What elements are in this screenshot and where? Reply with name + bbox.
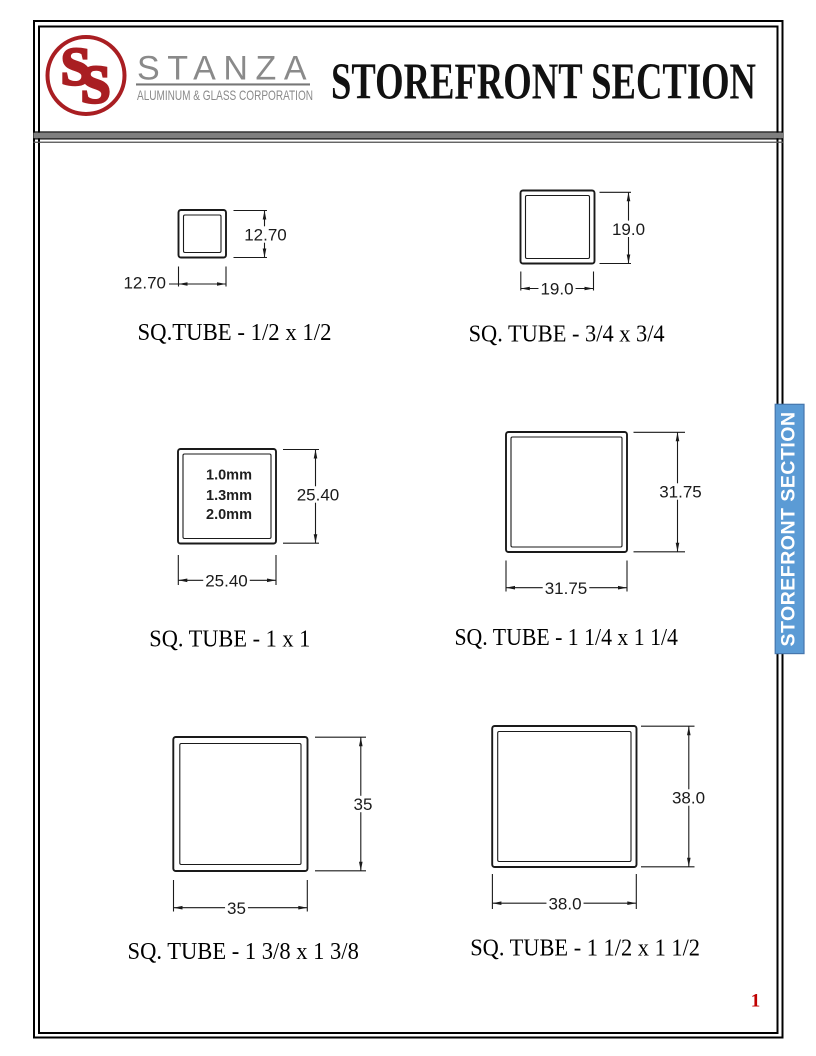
svg-text:25.40: 25.40 <box>297 486 340 505</box>
svg-text:SQ. TUBE - 3/4 x 3/4: SQ. TUBE - 3/4 x 3/4 <box>469 321 665 347</box>
svg-text:35: 35 <box>227 899 246 918</box>
svg-text:STANZA: STANZA <box>137 49 314 87</box>
svg-text:STOREFRONT SECTION: STOREFRONT SECTION <box>331 54 756 111</box>
svg-text:SQ. TUBE - 1 x 1: SQ. TUBE - 1 x 1 <box>149 626 310 652</box>
svg-text:SQ.TUBE - 1/2 x 1/2: SQ.TUBE - 1/2 x 1/2 <box>138 320 332 346</box>
svg-text:S: S <box>81 55 111 115</box>
svg-text:SQ. TUBE - 1 1/4 x 1 1/4: SQ. TUBE - 1 1/4 x 1 1/4 <box>454 625 678 651</box>
svg-text:19.0: 19.0 <box>540 280 573 299</box>
svg-text:19.0: 19.0 <box>612 220 645 239</box>
svg-text:12.70: 12.70 <box>123 274 166 293</box>
svg-text:STOREFRONT SECTION: STOREFRONT SECTION <box>778 411 800 646</box>
svg-text:31.75: 31.75 <box>545 579 588 598</box>
svg-text:31.75: 31.75 <box>659 483 702 502</box>
svg-text:1.0mm: 1.0mm <box>206 467 252 483</box>
svg-text:2.0mm: 2.0mm <box>206 507 252 523</box>
svg-text:38.0: 38.0 <box>672 789 705 808</box>
svg-text:12.70: 12.70 <box>244 226 287 245</box>
svg-text:SQ. TUBE - 1 1/2 x 1 1/2: SQ. TUBE - 1 1/2 x 1 1/2 <box>470 935 700 961</box>
svg-text:35: 35 <box>354 795 373 814</box>
svg-text:1.3mm: 1.3mm <box>206 488 252 504</box>
svg-text:ALUMINUM & GLASS CORPORATION: ALUMINUM & GLASS CORPORATION <box>137 87 313 103</box>
svg-text:SQ. TUBE - 1 3/8 x 1 3/8: SQ. TUBE - 1 3/8 x 1 3/8 <box>128 939 359 965</box>
svg-text:1: 1 <box>751 991 761 1012</box>
svg-text:25.40: 25.40 <box>205 572 248 591</box>
svg-text:38.0: 38.0 <box>548 894 581 913</box>
